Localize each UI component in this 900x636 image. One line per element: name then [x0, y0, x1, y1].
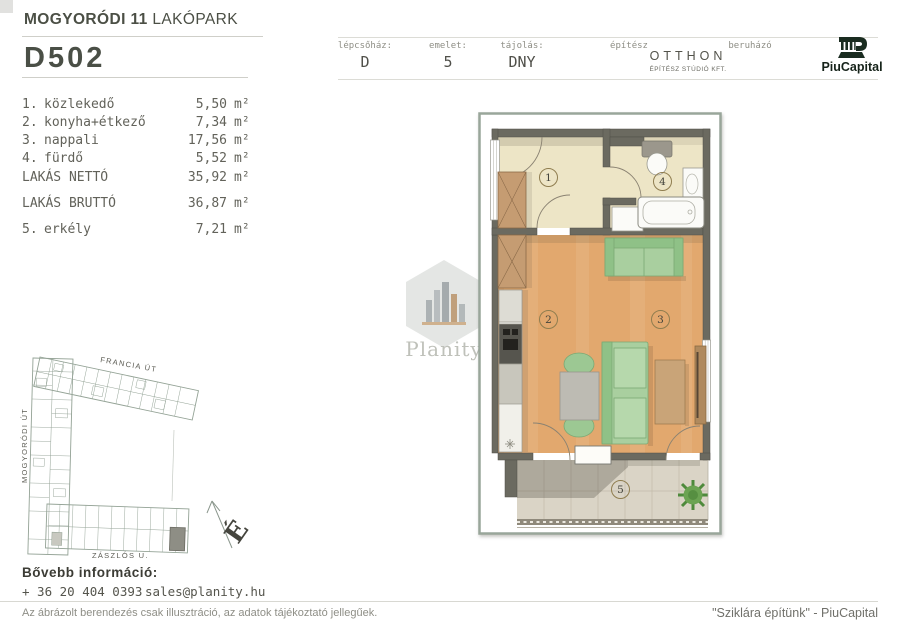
project-suffix: LAKÓPARK — [152, 11, 238, 28]
floor-value: 5 — [413, 53, 483, 71]
staircase-value: D — [330, 53, 400, 71]
slogan-text: "Sziklára építünk" - PiuCapital — [478, 606, 878, 620]
dining-set-icon — [560, 353, 599, 437]
unit-divider — [22, 77, 248, 78]
room-marker-1: 1 — [539, 168, 558, 187]
street-label-zaszlos: ZÁSZLÓS U. — [92, 551, 149, 560]
corner-artifact — [0, 0, 13, 13]
area-unit: m² — [234, 170, 260, 188]
room-name: konyha+étkező — [44, 115, 146, 130]
more-info-label: Bővebb információ: — [22, 565, 158, 580]
site-bottom-wing — [45, 504, 188, 553]
room-marker-2: 2 — [539, 310, 558, 329]
room-row: 4.fürdő 5,52m² — [22, 151, 260, 169]
architect-label: építész — [607, 41, 651, 51]
room-row: 2.konyha+étkező 7,34m² — [22, 115, 260, 133]
page-title: MOGYORÓDI 11 LAKÓPARK — [24, 11, 238, 29]
room-marker-5: 5 — [611, 480, 630, 499]
disclaimer-text: Az ábrázolt berendezés csak illusztráció… — [22, 607, 377, 619]
room-row: 1.közlekedő 5,50m² — [22, 97, 260, 115]
flyer-page: MOGYORÓDI 11 LAKÓPARK D502 lépcsőház: D … — [0, 0, 900, 636]
total-area: 36,87 — [163, 196, 227, 214]
room-area: 5,52 — [163, 151, 227, 169]
room-area: 7,34 — [163, 115, 227, 133]
room-number: 2. — [22, 115, 44, 130]
email-address: sales@planity.hu — [145, 584, 265, 599]
room-name: fürdő — [44, 151, 83, 166]
watermark-name: Planity — [405, 337, 482, 361]
area-unit: m² — [234, 133, 260, 151]
total-label: LAKÁS NETTÓ — [22, 170, 163, 188]
footer-divider — [0, 601, 878, 602]
total-gross-row: LAKÁS BRUTTÓ 36,87m² — [22, 196, 260, 214]
project-name: MOGYORÓDI 11 — [24, 11, 148, 28]
area-unit: m² — [234, 222, 260, 240]
room-name: erkély — [44, 222, 91, 237]
room-marker-3: 3 — [651, 310, 670, 329]
cabinet-icon — [655, 360, 689, 426]
room-number: 1. — [22, 97, 44, 112]
kitchen-counter-icon — [499, 290, 522, 452]
unit-id: D502 — [24, 42, 105, 75]
room-name: nappali — [44, 133, 99, 148]
orientation-value: DNY — [487, 53, 557, 71]
developer-label: beruházó — [726, 41, 774, 51]
area-unit: m² — [234, 115, 260, 133]
site-plan: FRANCIA ÚT MOGYORÓDI ÚT ZÁSZLÓS U. É — [12, 338, 262, 566]
architect-subtitle: ÉPÍTÉSZ STÚDIÓ KFT. — [648, 66, 728, 73]
tv-board-icon — [695, 346, 706, 424]
orientation-label: tájolás: — [487, 41, 557, 51]
staircase-label: lépcsőház: — [330, 41, 400, 51]
bathtub-icon — [638, 197, 704, 228]
sofa-icon — [605, 238, 686, 281]
highlighted-unit — [169, 527, 185, 551]
site-left-wing — [28, 358, 73, 555]
total-label: LAKÁS BRUTTÓ — [22, 196, 163, 214]
room-number: 4. — [22, 151, 44, 166]
area-unit: m² — [234, 196, 260, 214]
street-label-mogyorodi: MOGYORÓDI ÚT — [20, 408, 29, 483]
area-unit: m² — [234, 151, 260, 169]
floor-label: emelet: — [413, 41, 483, 51]
architect-name: OTTHON — [648, 49, 728, 63]
room-number: 3. — [22, 133, 44, 148]
balcony-row: 5.erkély 7,21m² — [22, 222, 260, 240]
room-marker-4: 4 — [653, 172, 672, 191]
room-area: 5,50 — [163, 97, 227, 115]
watermark-logo: Planity — [398, 252, 490, 364]
balcony-door-threshold — [575, 446, 611, 464]
floor-plan — [478, 112, 722, 535]
title-divider — [22, 36, 263, 37]
phone-number: + 36 20 404 0393 — [22, 584, 142, 599]
plant-icon — [678, 480, 708, 510]
sofabed-icon — [602, 342, 653, 446]
room-number: 5. — [22, 222, 44, 237]
developer-name: PiuCapital — [814, 60, 890, 74]
room-area: 7,21 — [163, 222, 227, 240]
area-unit: m² — [234, 97, 260, 115]
total-area: 35,92 — [163, 170, 227, 188]
room-area: 17,56 — [163, 133, 227, 151]
north-letter: É — [218, 514, 256, 549]
total-net-row: LAKÁS NETTÓ 35,92m² — [22, 170, 260, 188]
room-name: közlekedő — [44, 97, 114, 112]
room-row: 3.nappali 17,56m² — [22, 133, 260, 151]
